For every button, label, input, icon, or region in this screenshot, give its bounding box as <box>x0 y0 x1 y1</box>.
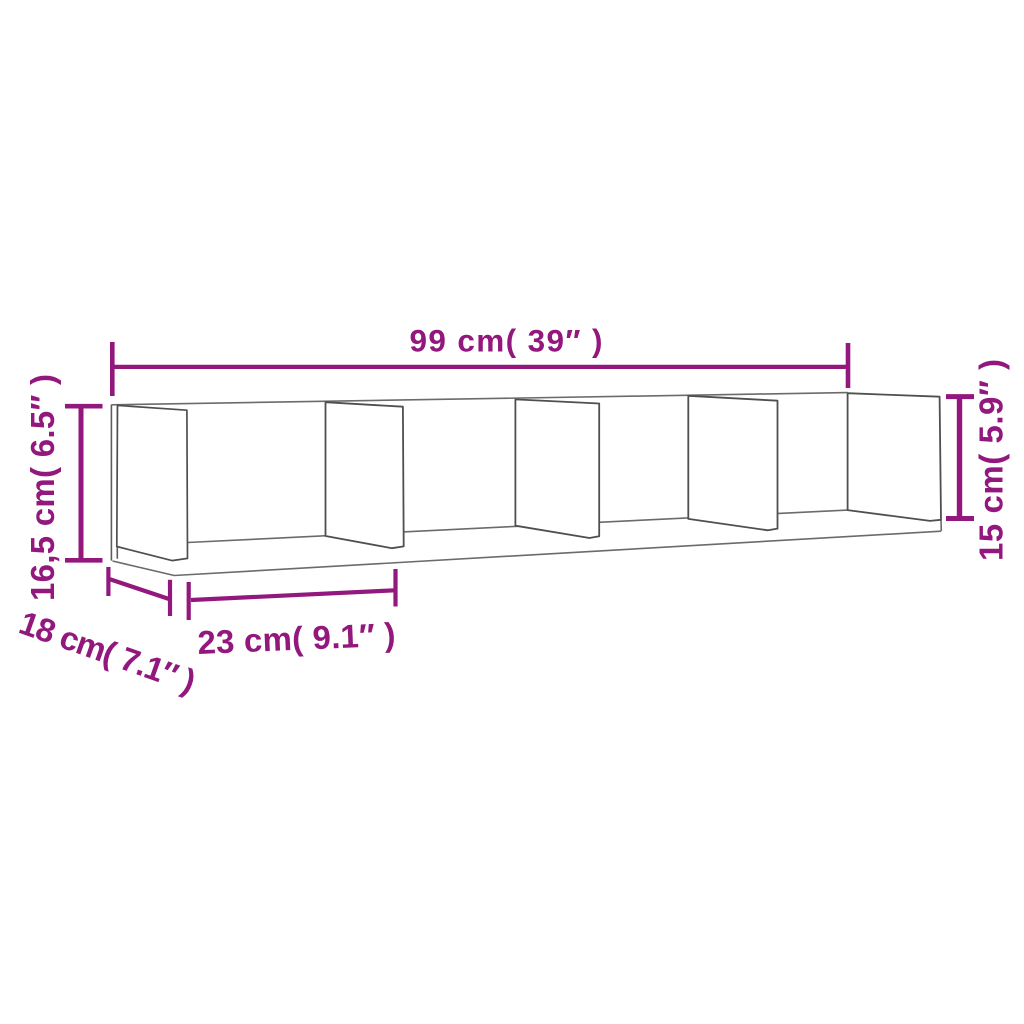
svg-text:16,5 cm( 6.5″ ): 16,5 cm( 6.5″ ) <box>24 374 61 601</box>
svg-text:99 cm( 39″ ): 99 cm( 39″ ) <box>410 323 603 359</box>
svg-text:15 cm( 5.9″ ): 15 cm( 5.9″ ) <box>973 359 1010 561</box>
